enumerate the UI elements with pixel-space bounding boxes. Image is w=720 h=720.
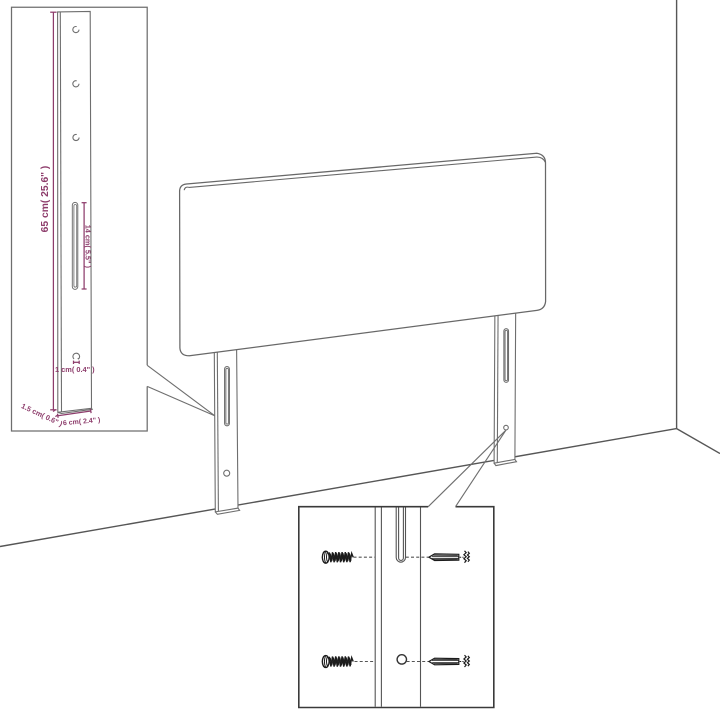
svg-text:14 cm( 5.5" ): 14 cm( 5.5" ): [83, 225, 92, 269]
svg-text:1 cm( 0.4" ): 1 cm( 0.4" ): [55, 365, 95, 374]
svg-text:65 cm( 25.6" ): 65 cm( 25.6" ): [40, 166, 51, 233]
